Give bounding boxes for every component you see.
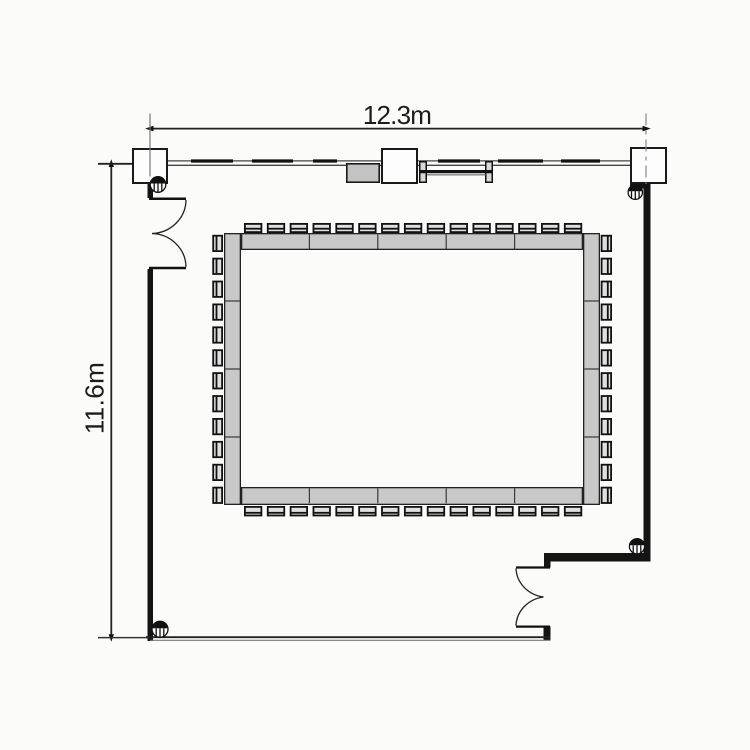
svg-text:11.6m: 11.6m: [80, 362, 110, 434]
svg-text:12.3m: 12.3m: [363, 100, 431, 130]
